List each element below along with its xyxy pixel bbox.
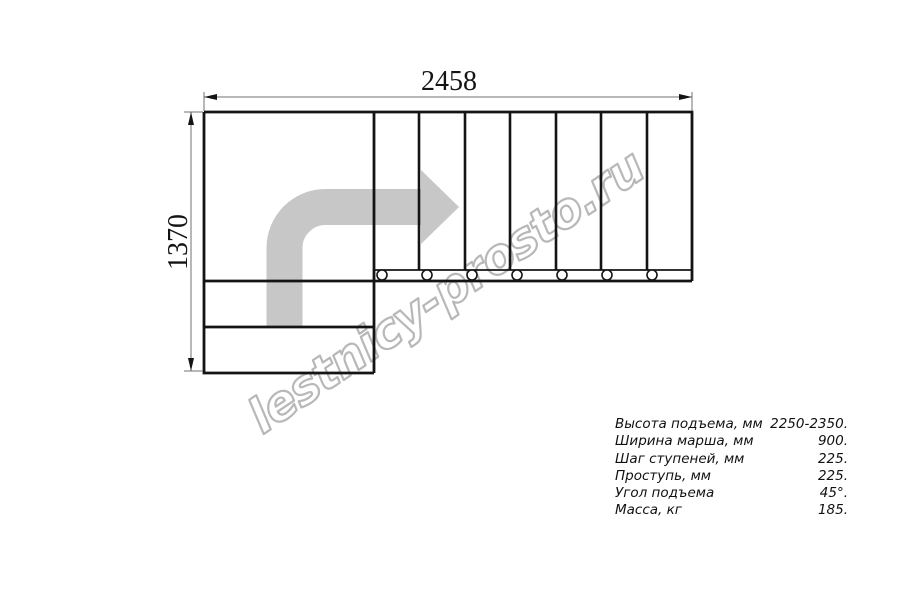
bolt-circle [377,270,387,280]
spec-label: Проступь, мм [615,468,711,485]
spec-value: 185. [818,502,848,519]
spec-value: 45°. [820,485,848,502]
dimension-arrow-up-icon [188,112,194,125]
spec-label: Шаг ступеней, мм [615,451,744,468]
spec-row: Угол подъема45°. [615,485,848,502]
spec-row: Масса, кг185. [615,502,848,519]
spec-value: 900. [818,433,848,450]
spec-row: Ширина марша, мм900. [615,433,848,450]
spec-label: Масса, кг [615,502,682,519]
specs-table: Высота подъема, мм2250-2350.Ширина марша… [615,416,848,520]
spec-value: 2250-2350. [770,416,848,433]
bolt-circle [422,270,432,280]
spec-value: 225. [818,468,848,485]
bolt-circle [557,270,567,280]
spec-label: Угол подъема [615,485,714,502]
spec-value: 225. [818,451,848,468]
spec-row: Высота подъема, мм2250-2350. [615,416,848,433]
spec-row: Шаг ступеней, мм225. [615,451,848,468]
bolt-circle [602,270,612,280]
bolt-circle [467,270,477,280]
spec-label: Ширина марша, мм [615,433,754,450]
stair-plan-drawing: lestnicy-prosto.ru [0,0,900,600]
dimension-left: 1370 [163,112,203,371]
dimension-arrow-down-icon [188,358,194,371]
dimension-top-label: 2458 [421,66,477,97]
dimension-arrow-right-icon [679,94,692,100]
dimension-top: 2458 [204,66,692,111]
spec-label: Высота подъема, мм [615,416,763,433]
spec-row: Проступь, мм225. [615,468,848,485]
dimension-left-label: 1370 [163,214,194,270]
bolt-circle [512,270,522,280]
direction-arrow-head [421,170,459,244]
bolt-circle [647,270,657,280]
dimension-arrow-left-icon [204,94,217,100]
